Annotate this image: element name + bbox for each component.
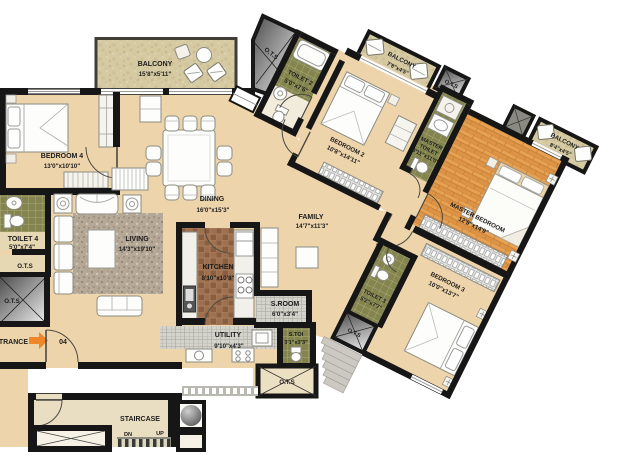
- svg-text:13'0"x10'10": 13'0"x10'10": [44, 163, 80, 170]
- svg-text:KITCHEN: KITCHEN: [202, 264, 233, 271]
- svg-text:TOILET 4: TOILET 4: [8, 236, 39, 243]
- svg-text:04: 04: [59, 339, 67, 346]
- svg-text:O.T.S: O.T.S: [17, 263, 32, 270]
- svg-text:ENTRANCE: ENTRANCE: [0, 339, 28, 346]
- svg-text:LIVING: LIVING: [125, 236, 149, 243]
- svg-text:O.T.S: O.T.S: [279, 379, 294, 386]
- svg-text:S.TOI: S.TOI: [289, 332, 304, 338]
- svg-text:BEDROOM 4: BEDROOM 4: [41, 153, 84, 160]
- svg-text:S.ROOM: S.ROOM: [271, 301, 300, 308]
- svg-text:6'0"x3'4": 6'0"x3'4": [272, 311, 298, 318]
- svg-text:16'0"x15'3": 16'0"x15'3": [197, 207, 230, 214]
- svg-text:O.T.S: O.T.S: [4, 298, 19, 305]
- svg-text:8'10"x10'8": 8'10"x10'8": [202, 275, 235, 282]
- svg-text:BALCONY: BALCONY: [138, 61, 173, 68]
- svg-text:14'3"x19'10": 14'3"x19'10": [119, 246, 155, 253]
- svg-text:DINING: DINING: [200, 196, 225, 203]
- svg-text:9'10"x4'3": 9'10"x4'3": [214, 343, 244, 350]
- svg-text:UP: UP: [156, 431, 164, 437]
- svg-text:FAMILY: FAMILY: [298, 214, 323, 221]
- svg-text:STAIRCASE: STAIRCASE: [120, 416, 160, 423]
- svg-text:3'1"x3'3": 3'1"x3'3": [284, 340, 308, 346]
- svg-text:15'8"x5'11": 15'8"x5'11": [139, 71, 172, 78]
- svg-text:UTILITY: UTILITY: [215, 332, 242, 339]
- svg-text:14'7"x11'3": 14'7"x11'3": [296, 223, 329, 230]
